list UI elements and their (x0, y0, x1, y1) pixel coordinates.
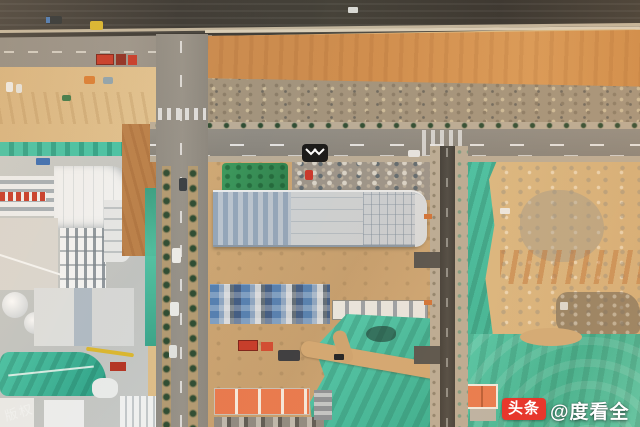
orange-container (424, 300, 432, 305)
watermark-handle: @度看全球 (550, 397, 640, 427)
machine (500, 208, 510, 214)
blue-truck (36, 158, 50, 165)
tree-median (188, 166, 198, 427)
large-gray-roof (0, 218, 58, 290)
compactor (62, 95, 71, 101)
roof-slabs (34, 288, 134, 346)
brown-soil-streaks (500, 250, 640, 284)
truck-cab (46, 17, 50, 23)
excavator (84, 76, 95, 84)
lane-dashes (180, 34, 182, 427)
left-boulevard (156, 34, 208, 427)
blue-tarp-laydown (210, 284, 330, 324)
sand-track-marks (0, 92, 152, 124)
red-container (261, 342, 273, 351)
roof-ridge (481, 386, 483, 407)
toutiao-badge: 头条 (502, 398, 546, 420)
west-sidewalk (430, 146, 440, 427)
dark-debris-patch (556, 292, 640, 334)
chevron-traffic-island (302, 144, 328, 162)
orange-roof-building (466, 384, 498, 409)
dark-truck (278, 350, 300, 361)
rounded-end-cap (415, 194, 427, 247)
concrete-building (213, 190, 427, 247)
crane-boom (0, 253, 65, 277)
white-roof (44, 400, 84, 427)
side-street-stub (414, 346, 440, 364)
car (172, 248, 181, 263)
tree-median (162, 166, 171, 427)
vehicle-on-path (334, 354, 344, 360)
dump-truck (6, 82, 13, 92)
east-sidewalk (455, 146, 468, 427)
excavator (103, 77, 113, 84)
horizontal-boulevard (150, 122, 640, 162)
material-stacks (314, 390, 332, 420)
crane-boom (8, 366, 94, 377)
right-street (440, 146, 455, 427)
teal-mesh-patch (0, 352, 106, 396)
aerial-photo: 版权 头条 @度看全球 (0, 0, 640, 427)
boulevard-lanes (150, 129, 640, 156)
car (179, 178, 187, 191)
sand-patch (520, 328, 582, 346)
teal-mesh-strip (145, 188, 156, 346)
colonnade-grid (60, 228, 106, 292)
lane-dashes (150, 144, 640, 146)
van (348, 7, 358, 13)
slab-grid (363, 192, 415, 245)
side-street-stub (414, 252, 440, 268)
dump-truck (16, 84, 22, 93)
chevron-marks-icon (302, 144, 328, 162)
red-steel-truss (0, 192, 46, 201)
red-container (128, 55, 137, 65)
red-container (110, 362, 126, 371)
red-crane (305, 170, 313, 180)
truck (46, 16, 62, 24)
machine (560, 302, 568, 310)
lane-dashes (446, 146, 448, 427)
orange-container (424, 214, 432, 219)
car (408, 150, 420, 157)
red-container (96, 54, 114, 65)
car (170, 302, 179, 316)
car (169, 345, 177, 358)
dark-pit (366, 326, 396, 342)
site-offices (214, 388, 310, 415)
storage-tank (2, 292, 28, 318)
concrete-pad (470, 409, 496, 421)
slab-center (291, 192, 365, 245)
red-container (116, 54, 126, 65)
white-canopy (92, 378, 118, 398)
red-container (238, 340, 258, 351)
north-sidewalk-trees (150, 122, 640, 129)
ribbed-white-roof (120, 396, 158, 427)
laydown-clutter (214, 417, 324, 427)
south-sidewalk (150, 156, 640, 162)
crosswalk (158, 108, 206, 120)
wheel-loader (90, 21, 103, 30)
